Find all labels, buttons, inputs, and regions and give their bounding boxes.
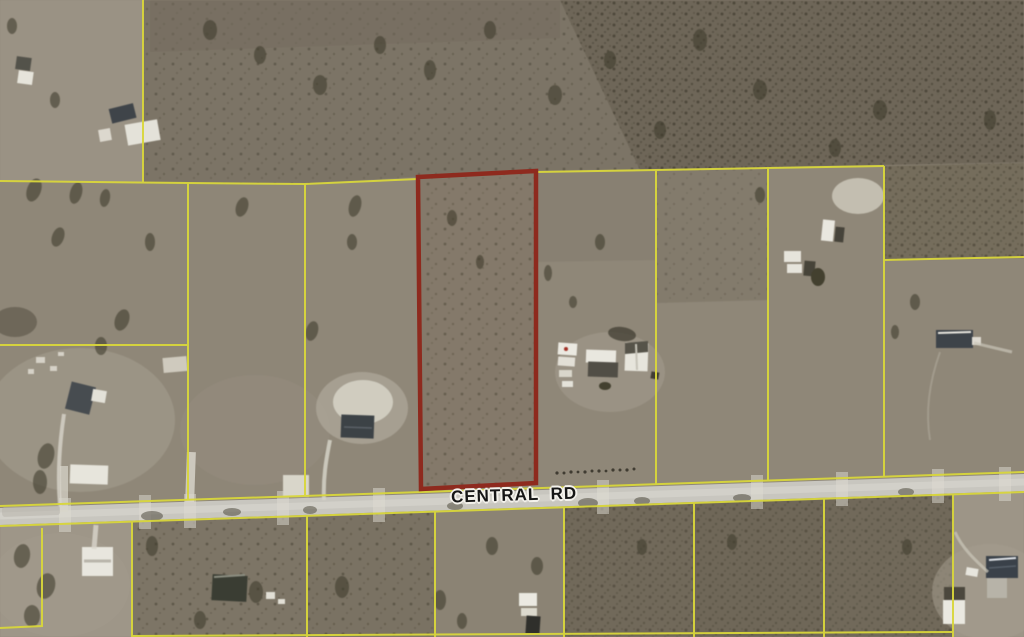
trailer — [787, 264, 802, 273]
tree — [604, 51, 616, 69]
tree — [457, 613, 467, 629]
shed — [562, 381, 573, 387]
trailer — [558, 356, 576, 366]
debris — [36, 357, 45, 363]
tree — [910, 294, 920, 310]
tree — [811, 268, 825, 286]
tree — [829, 139, 841, 157]
sand-patch — [832, 178, 884, 214]
shed — [70, 464, 109, 484]
pad — [987, 578, 1007, 598]
tree — [203, 20, 217, 40]
shrub — [611, 468, 614, 471]
parcel-tint — [536, 170, 656, 262]
object — [266, 592, 275, 599]
driveway — [185, 452, 196, 502]
shed — [519, 593, 537, 606]
tree — [873, 100, 887, 120]
barn — [211, 574, 247, 602]
tree — [902, 539, 912, 555]
shed — [521, 608, 537, 616]
faded-road-text-smudge — [2, 505, 60, 517]
shrub — [569, 470, 572, 473]
shrub — [625, 468, 628, 471]
shrub — [619, 469, 622, 472]
aerial-imagery — [0, 0, 1024, 637]
shrub — [577, 471, 580, 474]
parcel-south — [435, 507, 564, 637]
sand-patch — [162, 356, 187, 373]
brush-northeast-texture — [560, 0, 1024, 170]
tree — [753, 80, 767, 100]
shrub — [605, 470, 608, 473]
object — [834, 227, 845, 243]
driveway — [94, 525, 96, 549]
shadow — [141, 511, 163, 521]
building — [17, 70, 34, 85]
shrub — [591, 470, 594, 473]
tree — [145, 233, 155, 251]
roof-ridge — [938, 332, 971, 333]
tree — [595, 234, 605, 250]
debris — [50, 366, 57, 371]
rv — [821, 219, 835, 241]
object — [599, 382, 611, 390]
building-shadow — [588, 361, 619, 377]
parcel-south-texture — [824, 494, 953, 637]
shed — [944, 587, 965, 601]
tree — [484, 21, 496, 39]
tree — [727, 534, 737, 550]
parcel-south-texture — [564, 503, 694, 637]
debris — [28, 369, 34, 374]
building — [91, 389, 107, 403]
tree — [544, 265, 552, 281]
clearing — [180, 375, 330, 485]
parcel-south-texture — [694, 499, 824, 637]
roof-ridge — [636, 344, 637, 370]
red-object — [564, 347, 568, 351]
shadow — [303, 506, 317, 514]
shrub — [597, 469, 600, 472]
shrub — [555, 471, 558, 474]
tree — [755, 187, 765, 203]
object — [650, 371, 659, 379]
tree — [33, 470, 47, 494]
vehicle — [525, 616, 540, 635]
tree — [984, 110, 996, 130]
tree — [654, 121, 666, 139]
tree — [637, 539, 647, 555]
shrub — [583, 470, 586, 473]
trailer — [784, 251, 801, 262]
tree — [531, 557, 543, 575]
tree — [194, 611, 206, 629]
cleared-northwest — [0, 0, 143, 183]
tree — [424, 60, 436, 80]
highlighted-parcel-outline — [418, 171, 536, 489]
tree — [7, 18, 17, 34]
shed — [98, 128, 112, 142]
tree — [891, 325, 899, 339]
shed — [559, 370, 572, 377]
building — [586, 349, 616, 363]
debris — [58, 352, 64, 356]
brush-east-strip-texture — [884, 163, 1024, 260]
tree — [569, 296, 577, 308]
tree — [693, 29, 707, 51]
shrub — [633, 468, 636, 471]
parcel-south-texture — [307, 512, 435, 637]
shadow — [223, 508, 241, 516]
shrub — [563, 472, 566, 475]
object — [278, 599, 285, 604]
map-viewport: CENTRAL RD — [0, 0, 1024, 637]
tree — [313, 75, 327, 95]
roof-ridge — [344, 427, 372, 428]
parcel-texture — [656, 168, 768, 303]
building — [15, 56, 32, 71]
tree — [548, 85, 562, 105]
tree — [50, 92, 60, 108]
tree — [486, 537, 498, 555]
tree — [335, 576, 349, 598]
tree — [374, 36, 386, 54]
tree — [249, 581, 263, 603]
tree — [24, 605, 40, 627]
tree — [254, 46, 266, 64]
tree — [347, 234, 357, 250]
tree — [146, 536, 158, 556]
